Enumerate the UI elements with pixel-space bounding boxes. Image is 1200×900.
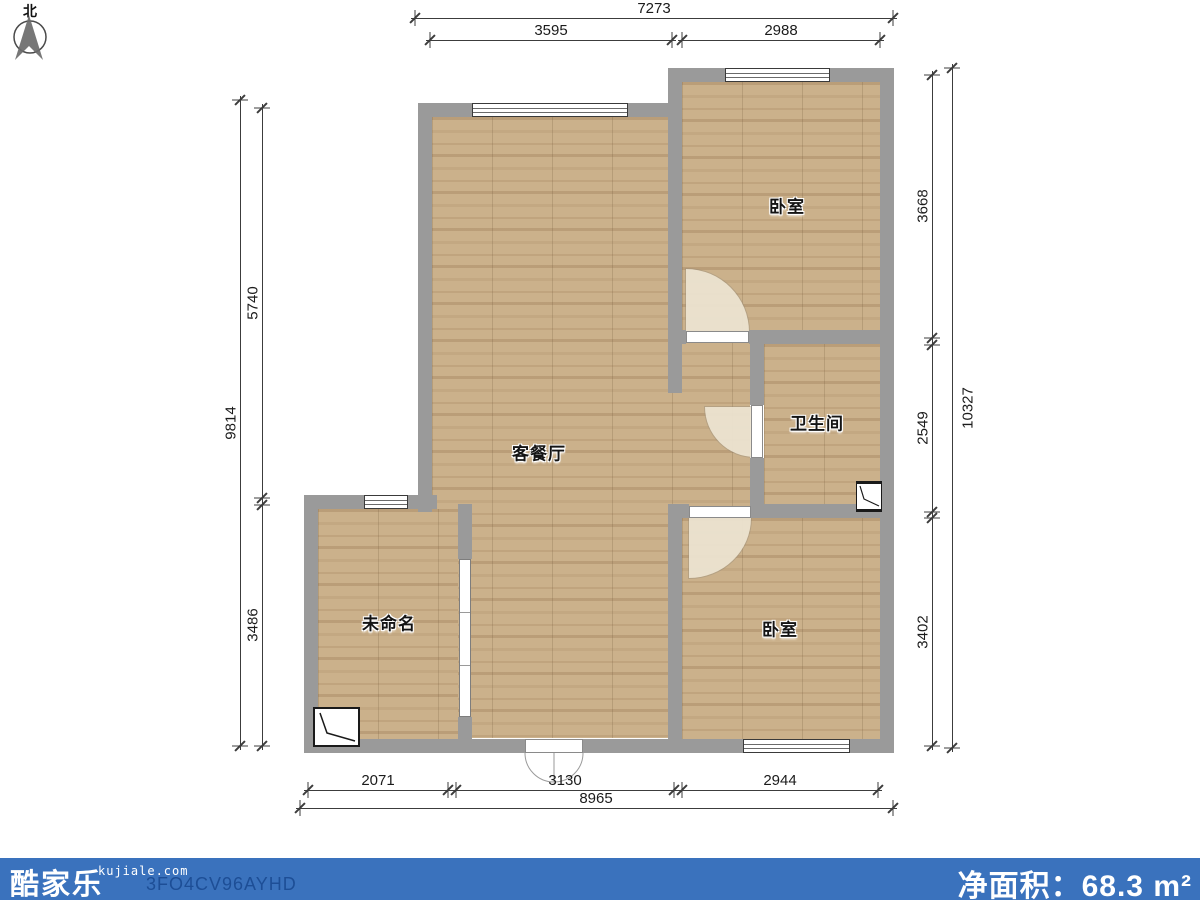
door-leaf-bedroom-top[interactable] xyxy=(686,331,749,343)
dim-bottom-s2: 3130 xyxy=(548,772,581,789)
north-arrow-icon xyxy=(6,10,58,66)
window-bedroom-bottom[interactable] xyxy=(743,739,850,753)
dim-left-s2-line xyxy=(262,501,263,750)
window-mullion xyxy=(365,504,407,505)
wall xyxy=(749,330,894,344)
window-mullion xyxy=(365,500,407,501)
dim-left-s1-line xyxy=(262,104,263,502)
wall xyxy=(880,68,894,753)
window-living-top[interactable] xyxy=(472,103,628,117)
wall xyxy=(750,344,764,405)
dim-top-total-line xyxy=(411,18,897,19)
dim-right-s2-line xyxy=(932,341,933,516)
dim-bottom-total: 8965 xyxy=(579,790,612,807)
dim-right-s3: 3402 xyxy=(915,615,932,648)
dim-bottom-s2-line xyxy=(452,790,678,791)
window-mullion xyxy=(744,748,849,749)
wall xyxy=(418,103,432,512)
wall xyxy=(458,504,472,559)
kujiale-logo: 酷家乐 xyxy=(10,861,103,900)
window-mullion xyxy=(744,744,849,745)
dim-right-s1: 3668 xyxy=(915,189,932,222)
dim-left-total: 9814 xyxy=(223,406,240,439)
window-mullion xyxy=(726,73,829,74)
door-leaf-bathroom[interactable] xyxy=(751,405,763,458)
sliding-door-divider xyxy=(460,612,470,613)
entry-door-threshold[interactable] xyxy=(525,739,583,753)
sliding-door-divider xyxy=(460,665,470,666)
net-area-label: 净面积： xyxy=(958,870,1082,900)
room-label-unnamed[interactable]: 未命名 xyxy=(362,610,416,635)
room-label-bathroom[interactable]: 卫生间 xyxy=(790,410,844,435)
dim-bottom-s1: 2071 xyxy=(361,772,394,789)
flue-icon-unnamed[interactable] xyxy=(313,707,360,747)
sliding-door-unnamed[interactable] xyxy=(459,559,471,717)
dim-top-s2-line xyxy=(678,40,884,41)
room-label-bedroom-top[interactable]: 卧室 xyxy=(769,193,805,218)
wall xyxy=(668,518,682,753)
wall xyxy=(668,82,682,393)
net-area-unit: m² xyxy=(1153,870,1192,900)
flue-icon-bathroom[interactable] xyxy=(856,481,882,512)
window-mullion xyxy=(726,77,829,78)
net-area: 净面积：68.3 m² xyxy=(958,861,1192,900)
dim-left-s2: 3486 xyxy=(245,608,262,641)
net-area-value: 68.3 xyxy=(1082,870,1144,900)
dim-top-s2: 2988 xyxy=(764,22,797,39)
dim-bottom-s1-line xyxy=(304,790,452,791)
dim-bottom-s3: 2944 xyxy=(763,772,796,789)
window-mullion xyxy=(473,108,627,109)
window-bedroom-top[interactable] xyxy=(725,68,830,82)
floorplan-page: 北 xyxy=(0,0,1200,900)
dim-top-total: 7273 xyxy=(637,0,670,17)
plan-code: 3FO4CV96AYHD xyxy=(146,874,297,895)
dim-left-s1: 5740 xyxy=(245,286,262,319)
window-mullion xyxy=(473,112,627,113)
dim-right-total: 10327 xyxy=(960,387,977,429)
dim-top-s1: 3595 xyxy=(534,22,567,39)
dim-bottom-total-line xyxy=(296,808,897,809)
dim-right-s2: 2549 xyxy=(915,411,932,444)
dim-bottom-s3-line xyxy=(678,790,882,791)
dim-top-s1-line xyxy=(426,40,676,41)
room-label-bedroom-bottom[interactable]: 卧室 xyxy=(762,616,798,641)
door-leaf-bedroom-bottom[interactable] xyxy=(689,506,751,518)
wall xyxy=(458,717,472,753)
room-label-living[interactable]: 客餐厅 xyxy=(512,440,566,465)
wall xyxy=(668,330,686,344)
window-unnamed-top[interactable] xyxy=(364,495,408,509)
dim-left-total-line xyxy=(240,96,241,750)
wall xyxy=(668,504,689,518)
dim-right-total-line xyxy=(952,64,953,752)
dim-right-s3-line xyxy=(932,514,933,750)
dim-right-s1-line xyxy=(932,71,933,342)
